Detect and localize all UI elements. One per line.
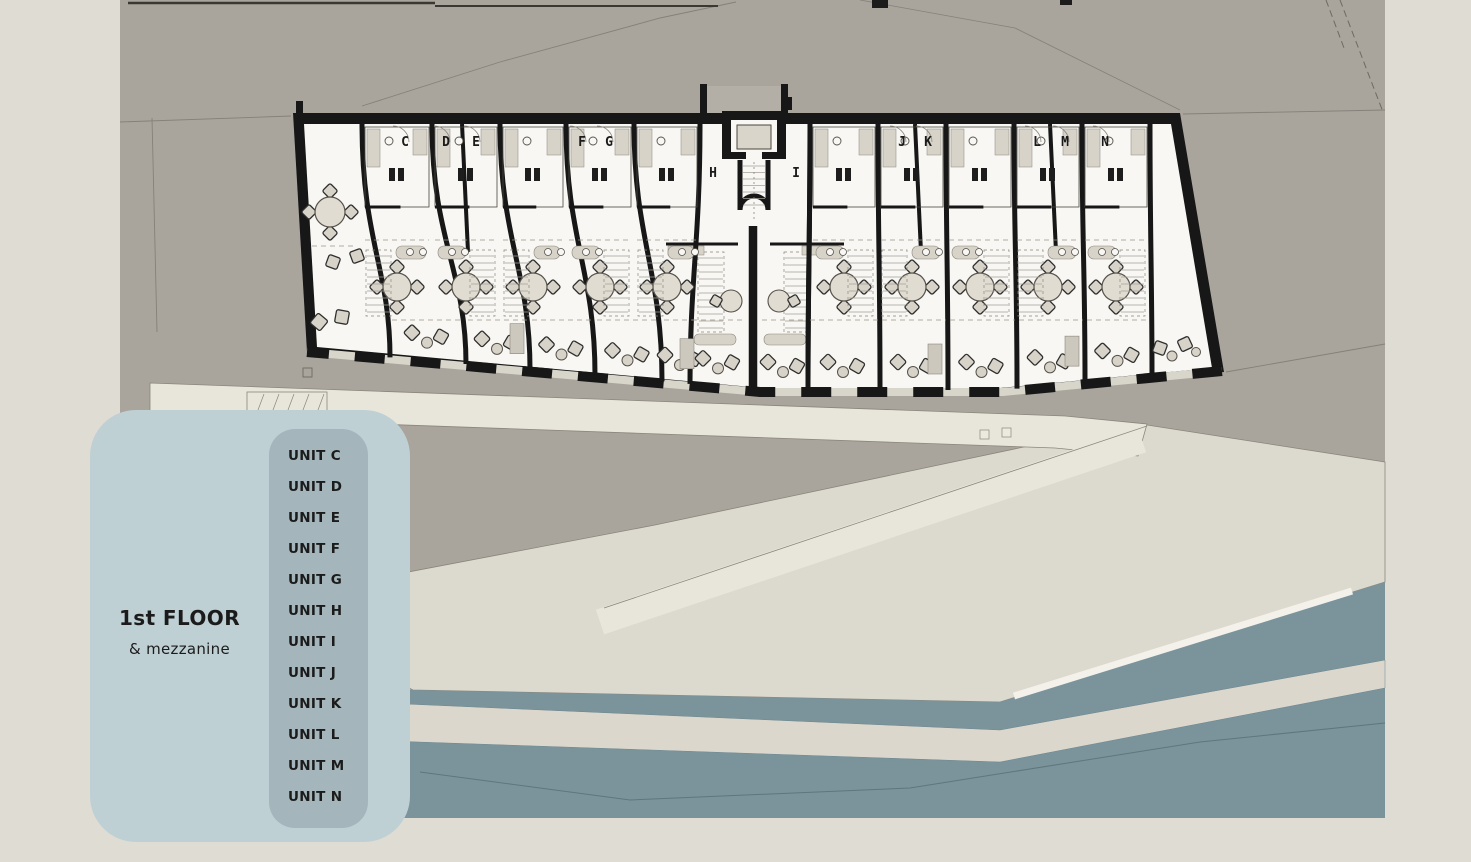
hob-icon [976, 249, 983, 256]
wardrobe [951, 129, 964, 167]
unit-letter-H: H [709, 166, 717, 181]
entrance-recess [702, 86, 786, 113]
shower [681, 129, 695, 155]
door-leaf [389, 168, 395, 181]
planter [1065, 336, 1079, 366]
unit-divider-wall [946, 124, 948, 390]
door-leaf [467, 168, 473, 181]
shower [481, 129, 495, 155]
door-leaf [1049, 168, 1055, 181]
neighbor-wall-stub [296, 101, 303, 114]
unit-list-item: UNIT C [288, 450, 368, 464]
unit-list-item: UNIT I [288, 636, 368, 650]
sink-icon [1099, 249, 1106, 256]
walkway-detail [1002, 428, 1011, 437]
unit-list-item: UNIT E [288, 512, 368, 526]
elevator-cab [737, 125, 771, 149]
door-leaf [836, 168, 842, 181]
hob-icon [558, 249, 565, 256]
wardrobe [815, 129, 828, 167]
balcony-table-icon [556, 349, 567, 360]
unit-list-item: UNIT D [288, 481, 368, 495]
unit-divider-wall [878, 124, 880, 390]
door-leaf [1040, 168, 1046, 181]
kitchen-counter [694, 334, 736, 345]
toilet-icon [657, 137, 665, 145]
balcony-table-icon [492, 343, 503, 354]
unit-letter-F: F [578, 135, 586, 150]
door-leaf [913, 168, 919, 181]
balcony-table-icon [713, 363, 724, 374]
shower [1131, 129, 1145, 155]
sink-icon [407, 249, 414, 256]
balcony-table-icon [908, 367, 919, 378]
balcony-table-icon [838, 367, 849, 378]
shower [615, 129, 629, 155]
balcony-table-icon [1112, 355, 1123, 366]
unit-list-item: UNIT H [288, 605, 368, 619]
unit-list-item: UNIT N [288, 791, 368, 805]
balcony-table-icon [422, 337, 433, 348]
hob-icon [1112, 249, 1119, 256]
wardrobe [505, 129, 518, 167]
unit-divider-wall [1150, 124, 1152, 376]
balcony-table-icon [976, 367, 987, 378]
planter [510, 324, 524, 354]
table-icon [720, 290, 742, 312]
floor-subtitle: & mezzanine [90, 640, 269, 658]
legend-panel: 1st FLOOR & mezzanine UNIT C UNIT D UNIT… [90, 410, 410, 842]
unit-letter-N: N [1101, 135, 1109, 150]
door-leaf [592, 168, 598, 181]
neighbor-building-edge [872, 0, 888, 8]
wardrobe [883, 129, 896, 167]
balcony-table-icon [1045, 362, 1056, 373]
unit-letter-D: D [442, 135, 450, 150]
shower [995, 129, 1009, 155]
toilet-icon [455, 137, 463, 145]
balcony-table-icon [778, 367, 789, 378]
balcony-table-icon [1167, 351, 1177, 361]
entrance-recess-wall [781, 84, 788, 113]
hob-icon [692, 249, 699, 256]
toilet-icon [589, 137, 597, 145]
balcony-table-icon [1192, 348, 1201, 357]
table-icon [315, 197, 345, 227]
shower [859, 129, 873, 155]
neighbor-building-edge [1060, 0, 1072, 5]
unit-list-item: UNIT J [288, 667, 368, 681]
door-leaf [668, 168, 674, 181]
door-leaf [1108, 168, 1114, 181]
unit-list-item: UNIT M [288, 760, 368, 774]
shower [547, 129, 561, 155]
sink-icon [679, 249, 686, 256]
floor-title: 1st FLOOR [90, 606, 269, 630]
unit-list: UNIT C UNIT D UNIT E UNIT F UNIT G UNIT … [269, 429, 368, 828]
shower [413, 129, 427, 155]
door-leaf [601, 168, 607, 181]
door-leaf [845, 168, 851, 181]
door-leaf [1117, 168, 1123, 181]
door-leaf [972, 168, 978, 181]
floorplan-page: CDEFGHIJKLMN 1st FLOOR & mezzanine UNIT … [0, 0, 1471, 862]
toilet-icon [385, 137, 393, 145]
hob-icon [1072, 249, 1079, 256]
unit-list-item: UNIT G [288, 574, 368, 588]
walkway-detail [980, 430, 989, 439]
balcony-table-icon [622, 355, 633, 366]
toilet-icon [833, 137, 841, 145]
kitchen-counter [764, 334, 806, 345]
door-leaf [904, 168, 910, 181]
unit-letter-L: L [1033, 135, 1041, 150]
sink-icon [923, 249, 930, 256]
door-leaf [458, 168, 464, 181]
wardrobe [1019, 129, 1032, 167]
wardrobe [639, 129, 652, 167]
unit-divider-wall [808, 124, 810, 390]
elevator-door-gap [746, 152, 762, 161]
unit-letter-K: K [924, 135, 932, 150]
unit-letter-C: C [401, 135, 409, 150]
planter [680, 339, 694, 369]
sink-icon [1059, 249, 1066, 256]
hob-icon [596, 249, 603, 256]
entrance-recess-wall [700, 84, 707, 113]
unit-letter-G: G [605, 135, 613, 150]
legend-title-block: 1st FLOOR & mezzanine [90, 606, 269, 658]
sink-icon [583, 249, 590, 256]
planter [928, 344, 942, 374]
sink-icon [963, 249, 970, 256]
table-icon [768, 290, 790, 312]
wardrobe [367, 129, 380, 167]
unit-letter-E: E [472, 135, 480, 150]
unit-letter-M: M [1061, 135, 1069, 150]
sink-icon [545, 249, 552, 256]
hob-icon [462, 249, 469, 256]
toilet-icon [969, 137, 977, 145]
unit-letter-I: I [792, 166, 800, 181]
door-leaf [981, 168, 987, 181]
hob-icon [420, 249, 427, 256]
wardrobe [1087, 129, 1100, 167]
door-leaf [398, 168, 404, 181]
sink-icon [449, 249, 456, 256]
door-leaf [525, 168, 531, 181]
unit-divider-wall [1014, 124, 1017, 389]
unit-list-item: UNIT L [288, 729, 368, 743]
unit-letter-J: J [898, 135, 906, 150]
unit-list-item: UNIT F [288, 543, 368, 557]
chair-icon [334, 309, 349, 324]
door-leaf [659, 168, 665, 181]
sink-icon [827, 249, 834, 256]
door-leaf [534, 168, 540, 181]
unit-list-item: UNIT K [288, 698, 368, 712]
unit-divider-wall [1082, 124, 1085, 382]
hob-icon [840, 249, 847, 256]
toilet-icon [523, 137, 531, 145]
hob-icon [936, 249, 943, 256]
